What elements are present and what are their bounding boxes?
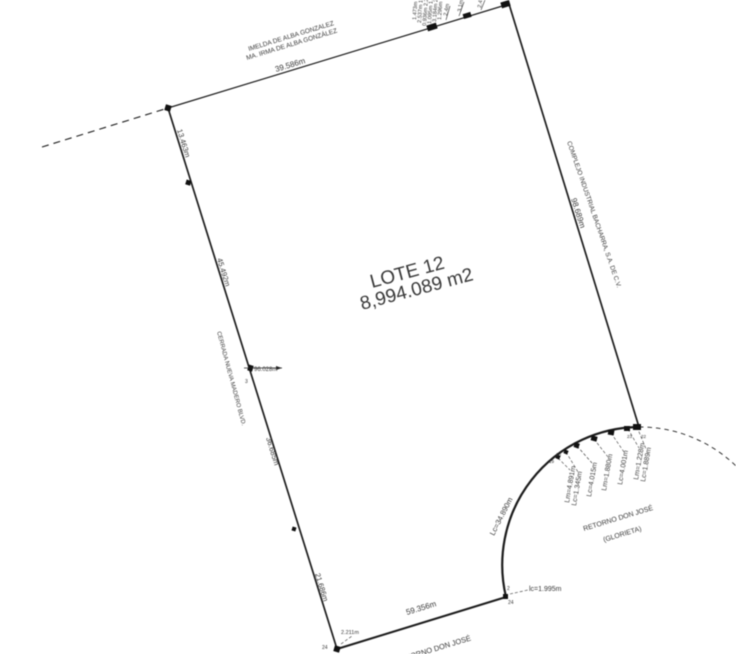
svg-text:13.463m: 13.463m [175, 128, 192, 159]
svg-text:21.686m: 21.686m [313, 572, 330, 603]
svg-text:59.356m: 59.356m [405, 599, 438, 617]
svg-text:36.685m: 36.685m [264, 436, 281, 467]
svg-text:96.028m: 96.028m [254, 367, 277, 373]
svg-text:22: 22 [641, 434, 647, 439]
svg-text:2.211m: 2.211m [341, 630, 359, 636]
svg-text:Lc=4.015m: Lc=4.015m [586, 462, 599, 498]
svg-text:98.689m: 98.689m [569, 197, 587, 230]
svg-text:RETORNO DON JOSÉ: RETORNO DON JOSÉ [582, 503, 654, 533]
svg-text:RETORNO DON JOSÉ: RETORNO DON JOSÉ [395, 634, 472, 654]
svg-text:23: 23 [627, 434, 633, 439]
svg-text:2.4m: 2.4m [443, 3, 451, 16]
svg-text:Lc=4.001m: Lc=4.001m [617, 450, 630, 486]
svg-text:(GLORIETA): (GLORIETA) [603, 526, 643, 544]
svg-text:19: 19 [549, 459, 555, 464]
svg-text:2: 2 [507, 586, 510, 592]
svg-text:24: 24 [508, 600, 514, 606]
svg-text:18: 18 [556, 452, 562, 457]
svg-text:3: 3 [245, 379, 248, 385]
svg-text:2.4m: 2.4m [477, 0, 485, 8]
svg-text:45.492m: 45.492m [215, 257, 232, 288]
svg-text:24: 24 [322, 645, 328, 651]
svg-text:Lm=1.880m: Lm=1.880m [601, 453, 614, 491]
svg-text:lc=1.995m: lc=1.995m [529, 586, 562, 593]
